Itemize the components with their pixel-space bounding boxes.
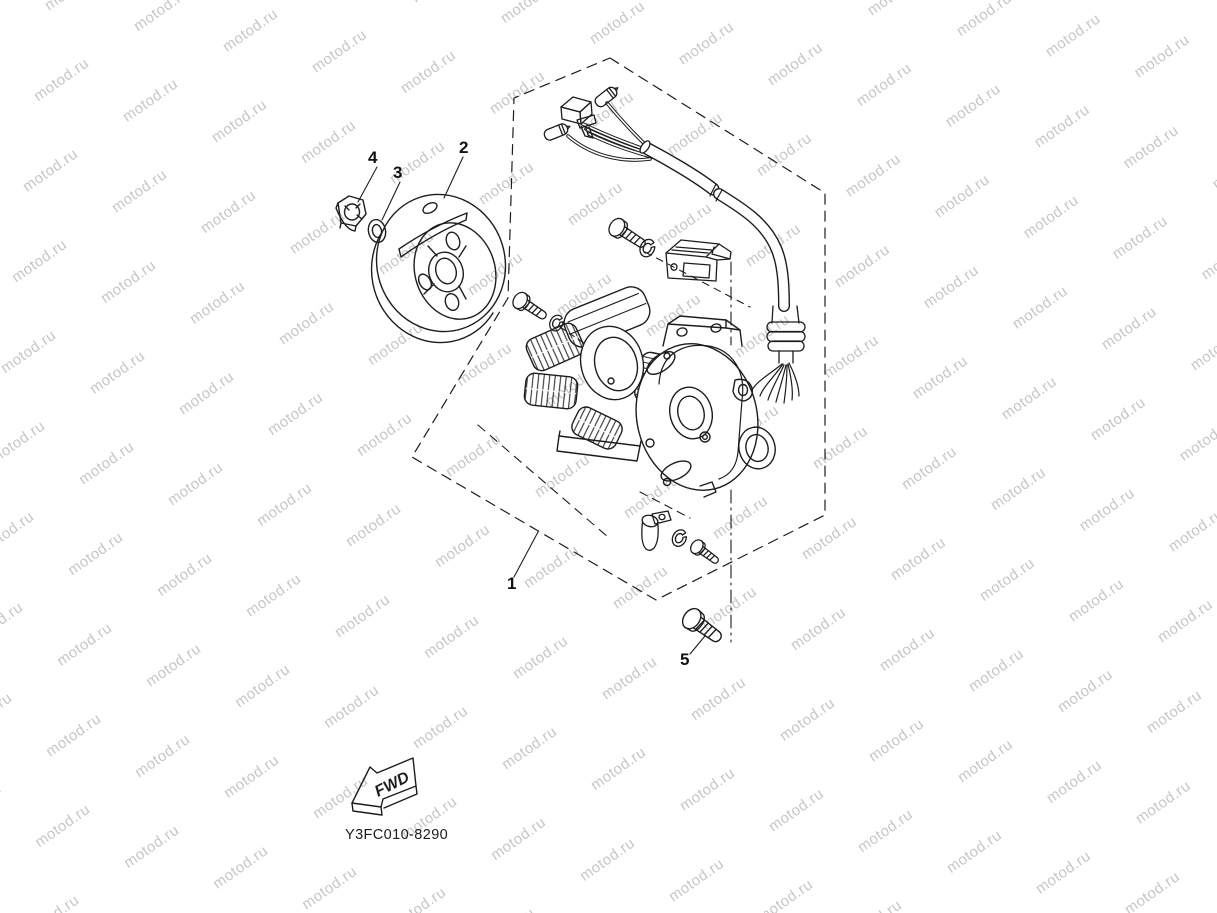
- callout-3: 3: [393, 164, 402, 181]
- callout-1: 1: [507, 575, 516, 592]
- clamp-screw: [688, 538, 722, 568]
- diagram-code: Y3FC010-8290: [345, 827, 448, 843]
- callout-5: 5: [680, 651, 689, 668]
- callout-4: 4: [368, 149, 377, 166]
- harness-cable: [716, 190, 784, 306]
- screw-left: [510, 290, 550, 325]
- cable-clamp: [641, 511, 671, 550]
- block-connector: [561, 97, 596, 138]
- flywheel-rotor: [359, 178, 523, 349]
- mount-screw: [679, 605, 727, 648]
- pickup-coil: [666, 240, 731, 281]
- harness-sheath: [638, 139, 716, 196]
- frayed-wires: [752, 363, 799, 403]
- parts-diagram-page: motod.rumotod.rumotod.rumotod.rumotod.ru…: [0, 0, 1217, 913]
- hex-nut: [336, 196, 366, 231]
- spring-washer-upper: [637, 237, 657, 259]
- cable-grommet: [752, 306, 805, 403]
- exploded-diagram-art: FWD: [0, 0, 1217, 913]
- wire-harness: [543, 83, 784, 306]
- callout-2: 2: [459, 139, 468, 156]
- stator-base-plate: [621, 316, 773, 503]
- bullet-connector-left: [543, 121, 572, 141]
- fwd-arrow: FWD: [352, 758, 417, 815]
- clamp-spring-washer: [670, 528, 689, 549]
